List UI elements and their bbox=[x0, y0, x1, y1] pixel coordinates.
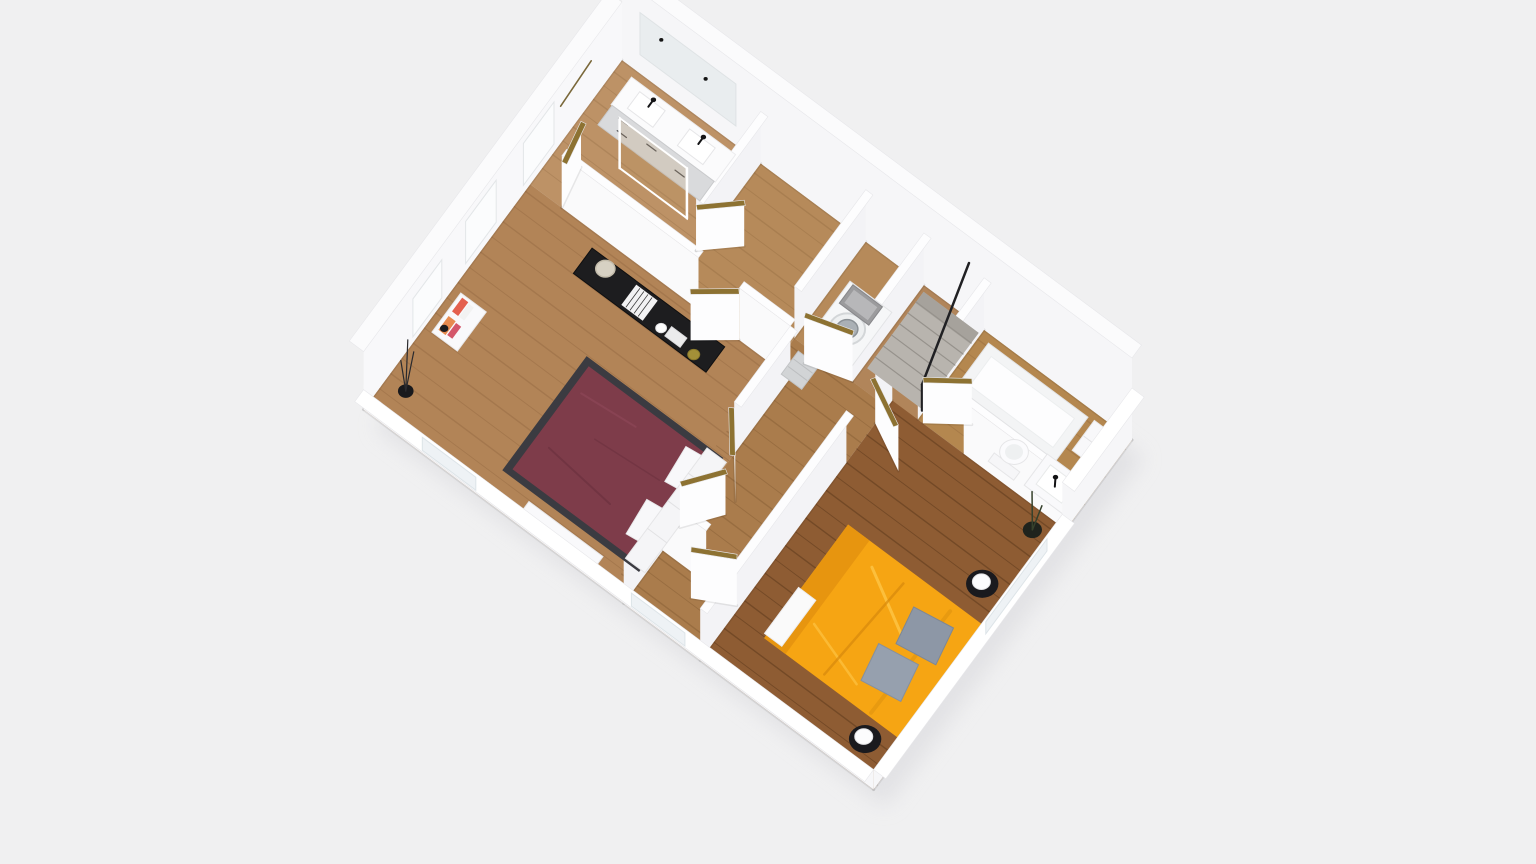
apartment-dollhouse-view bbox=[349, 0, 1144, 808]
shelf-bowl bbox=[440, 325, 448, 332]
table-lamp bbox=[972, 574, 990, 590]
door-hall-north-face bbox=[691, 294, 740, 340]
console-bowl bbox=[656, 323, 667, 332]
toilet-seat bbox=[1005, 444, 1023, 460]
floorplan-3d-render bbox=[0, 0, 1536, 864]
small-sink-spout bbox=[1055, 477, 1056, 486]
door-bathroom2-face bbox=[923, 377, 972, 424]
sconce-light-right bbox=[704, 77, 708, 81]
sconce-light-left bbox=[659, 38, 663, 42]
door-living-a-cap bbox=[729, 408, 736, 456]
door-bathroom2-cap bbox=[923, 377, 972, 384]
table-lamp bbox=[855, 729, 873, 745]
console-basket bbox=[596, 260, 615, 277]
door-hall-closet-face bbox=[691, 552, 737, 605]
console-vase bbox=[688, 349, 700, 359]
floorplan-3d-stage bbox=[0, 0, 1536, 864]
door-hall-north-cap bbox=[690, 289, 739, 295]
